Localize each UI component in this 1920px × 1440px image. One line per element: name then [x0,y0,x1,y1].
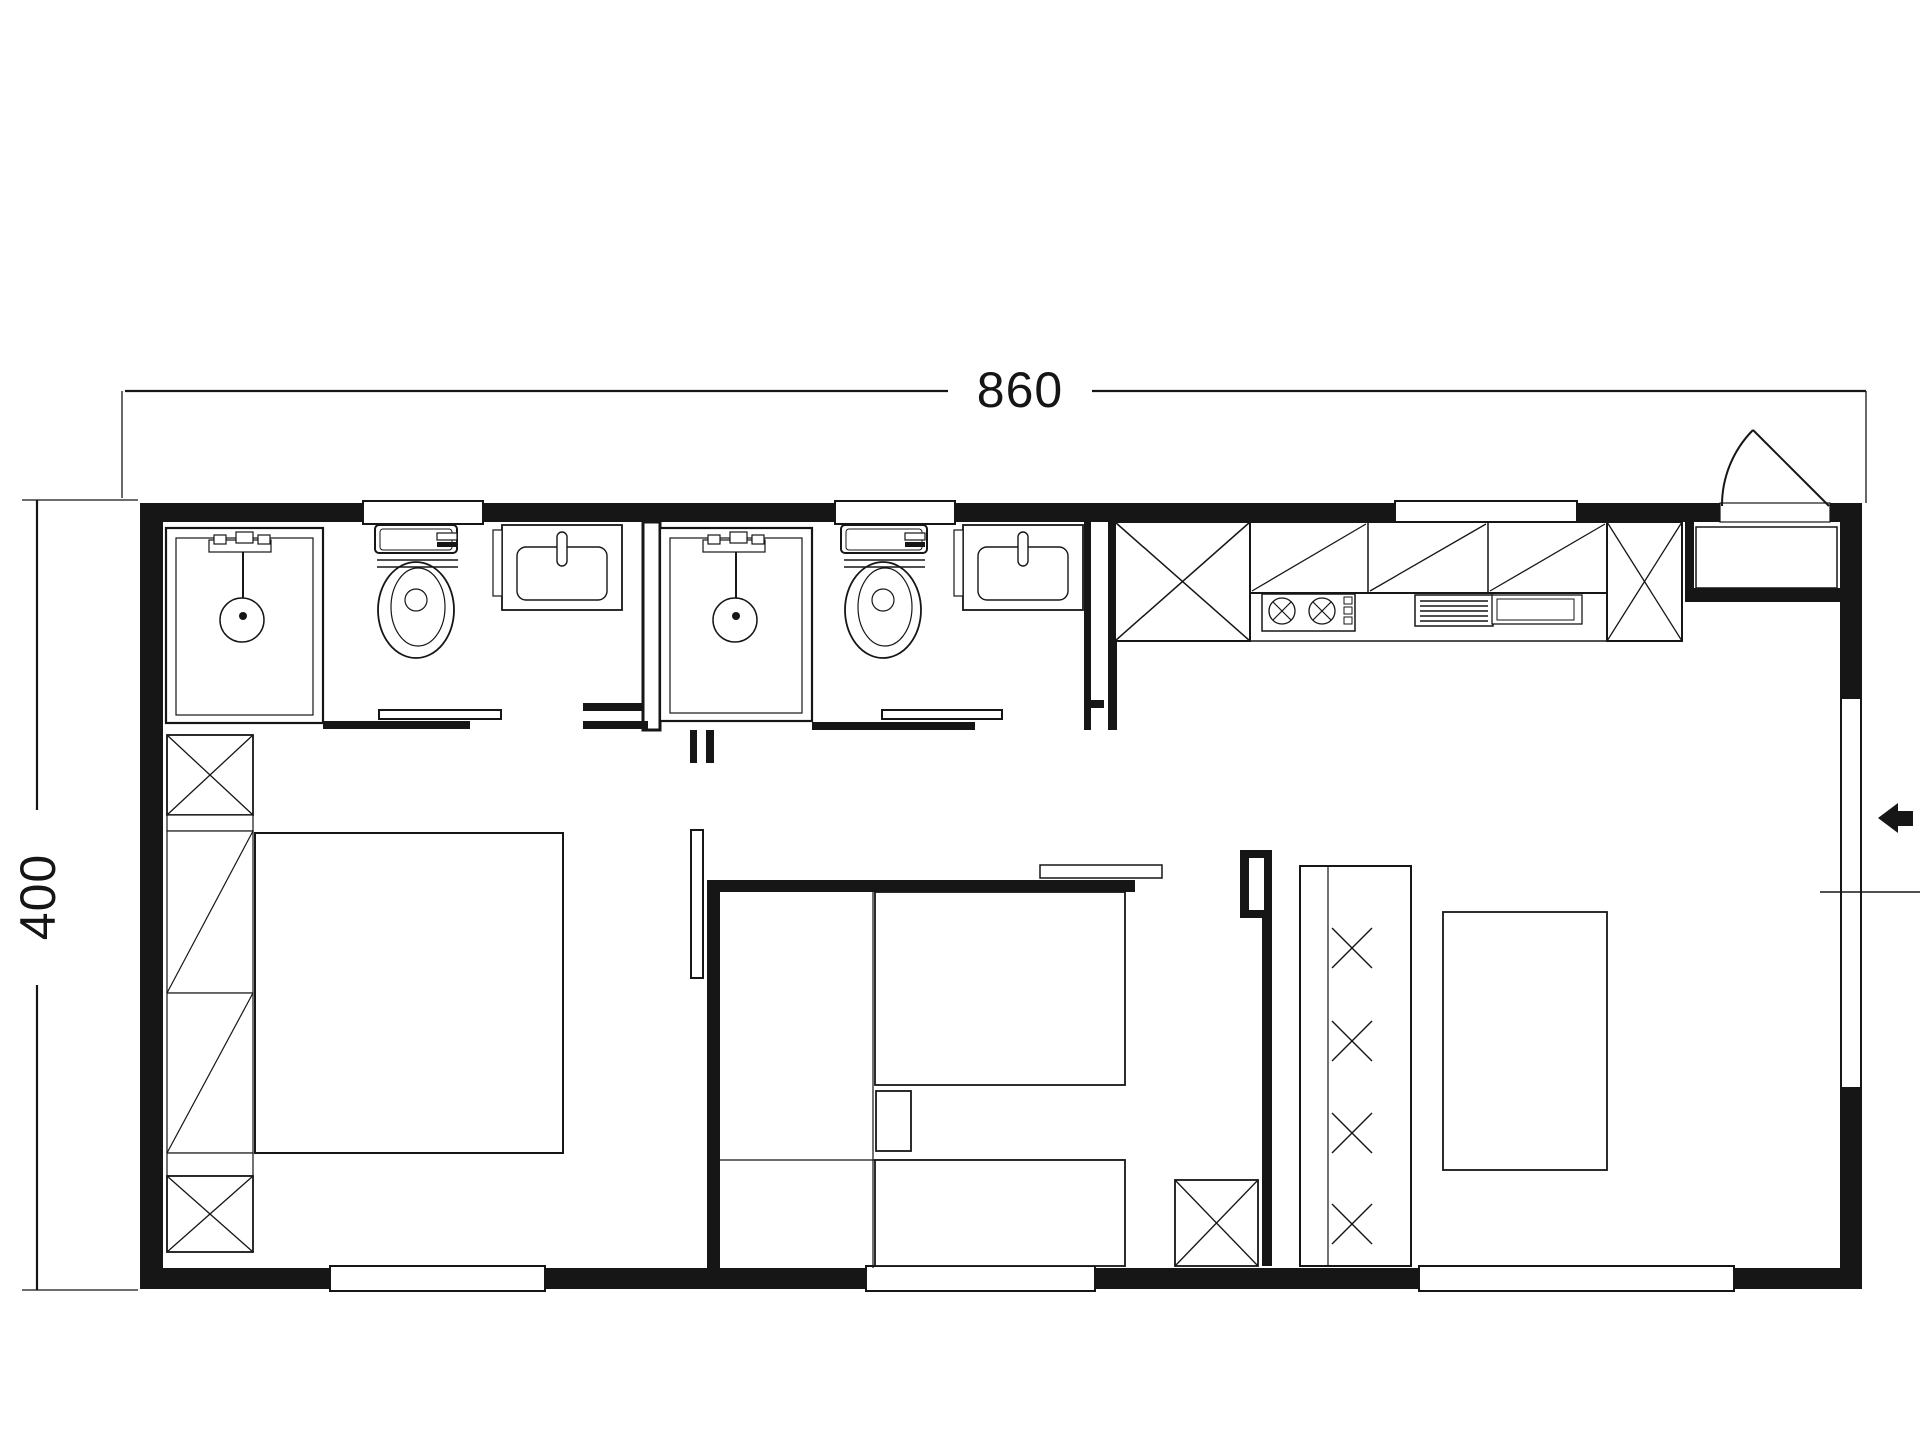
shower1-faucet-knob-right [258,535,270,544]
entry-door-opening [1720,503,1830,522]
wall-bedroom2-top [707,880,1135,892]
toilet1-bowl-outer [378,562,454,658]
entry-door-swing-arc [1722,430,1753,506]
outer-wall-bottom-seg-2 [545,1268,866,1289]
shower2-faucet-knob-mid [730,532,747,543]
window-bottom-1 [330,1266,545,1291]
wall-hall-stub-a [690,730,697,763]
bath2-sliding-door-leaf [882,710,1002,719]
window-bottom-3 [1419,1266,1734,1291]
floor-plan-svg [0,0,1920,1440]
wall-hall-stub-b [706,730,714,763]
wall-bath2-jamb-tick [1091,700,1104,708]
toilet1-flush-b [437,542,457,547]
shower1-head [220,598,264,642]
window-top-1 [363,501,483,524]
window-top-2 [835,501,955,524]
outer-wall-top-seg-2 [483,503,835,522]
shower2-faucet-knob-right [752,535,764,544]
dimension-width-label: 860 [949,364,1091,416]
floor-plan: 860 400 [0,0,1920,1440]
entry-closet-cabinet [1696,527,1837,588]
outer-wall-bottom-seg-1 [140,1268,330,1289]
window-bottom-2 [866,1266,1095,1291]
island-body [1300,866,1411,1266]
bed2-lower [875,1160,1125,1266]
island-side-bar [1262,918,1272,1266]
shower1-head-dot [239,612,247,620]
dining-table [1443,912,1607,1170]
wall-bath1-bath2-divider [643,522,660,730]
outer-wall-top-seg-4 [1577,503,1720,522]
wall-bath1-door-track [583,703,643,711]
wall-bath2-kitchen-a [1084,522,1091,730]
entry-door-leaf [1753,430,1829,506]
outer-wall-top-seg-1 [140,503,363,522]
window-right [1841,698,1861,1088]
wall-bath1-bottom-a [323,721,470,729]
shower1-faucet-knob-mid [236,532,253,543]
wardrobe-strip-top [167,815,253,831]
bath1-sliding-door-leaf [379,710,501,719]
wall-bedroom2-left [707,880,720,1268]
toilet2-flush-b [905,542,925,547]
vanity1-side-bar [493,530,502,596]
vanity2-side-bar [954,530,963,596]
outer-wall-right-lower [1840,1088,1862,1289]
toilet2-flush-a [905,533,925,540]
entry-closet-wall-bottom [1685,588,1845,602]
outer-wall-bottom-seg-4 [1734,1268,1862,1289]
toilet2-bowl-outer [845,562,921,658]
outer-wall-left [140,503,163,1289]
shower2-head-dot [732,612,740,620]
shower2-faucet-knob-left [708,535,720,544]
outer-wall-top-seg-3 [955,503,1395,522]
window-top-3 [1395,501,1577,524]
island-end-cap-inner [1249,858,1264,910]
wall-bath1-bottom-b [583,721,648,729]
toilet1-flush-a [437,533,457,540]
bedroom2-sliding-door-leaf [691,830,703,978]
shower2-head [713,598,757,642]
bedroom2-shelf [1040,865,1162,878]
bed2-step [876,1091,911,1151]
wall-bath2-bottom [812,722,975,730]
wardrobe-strip-bottom [167,1153,253,1176]
bed1 [255,833,563,1153]
dimension-height-label: 400 [12,812,64,982]
outer-wall-bottom-seg-3 [1095,1268,1419,1289]
vanity2-faucet [1018,532,1028,566]
shower1-faucet-knob-left [214,535,226,544]
entry-direction-arrow [1878,803,1913,833]
vanity1-faucet [557,532,567,566]
bed2-upper [875,892,1125,1085]
